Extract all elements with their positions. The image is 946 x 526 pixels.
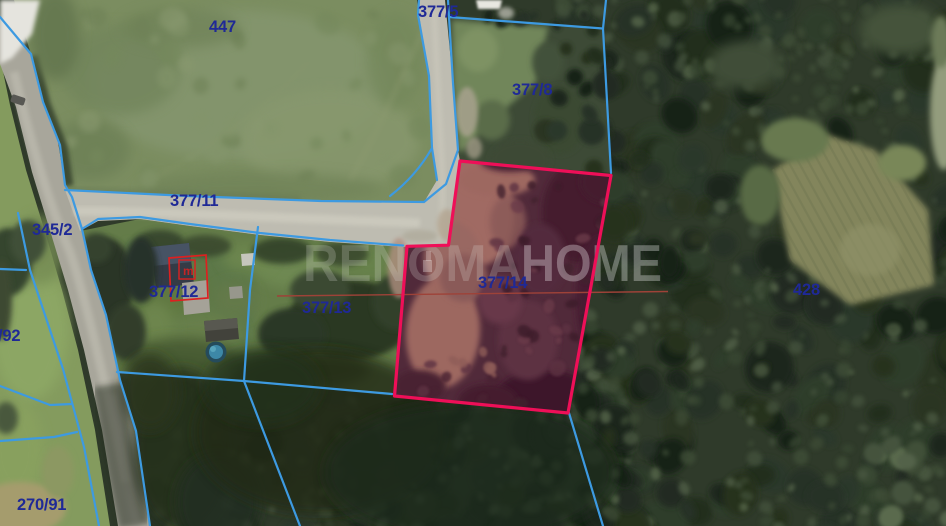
svg-text:377/12: 377/12 xyxy=(149,283,198,301)
svg-text:377/8: 377/8 xyxy=(512,81,552,99)
svg-text:428: 428 xyxy=(793,281,820,299)
svg-text:377/14: 377/14 xyxy=(478,274,528,292)
svg-text:m: m xyxy=(183,264,194,278)
svg-text:345/2: 345/2 xyxy=(32,221,72,239)
svg-text:447: 447 xyxy=(209,18,236,36)
svg-text:377/5: 377/5 xyxy=(418,3,458,21)
svg-text:377/13: 377/13 xyxy=(302,299,351,317)
svg-text:377/11: 377/11 xyxy=(170,192,218,210)
svg-text:270/91: 270/91 xyxy=(17,496,66,514)
svg-text:/92: /92 xyxy=(0,327,20,345)
